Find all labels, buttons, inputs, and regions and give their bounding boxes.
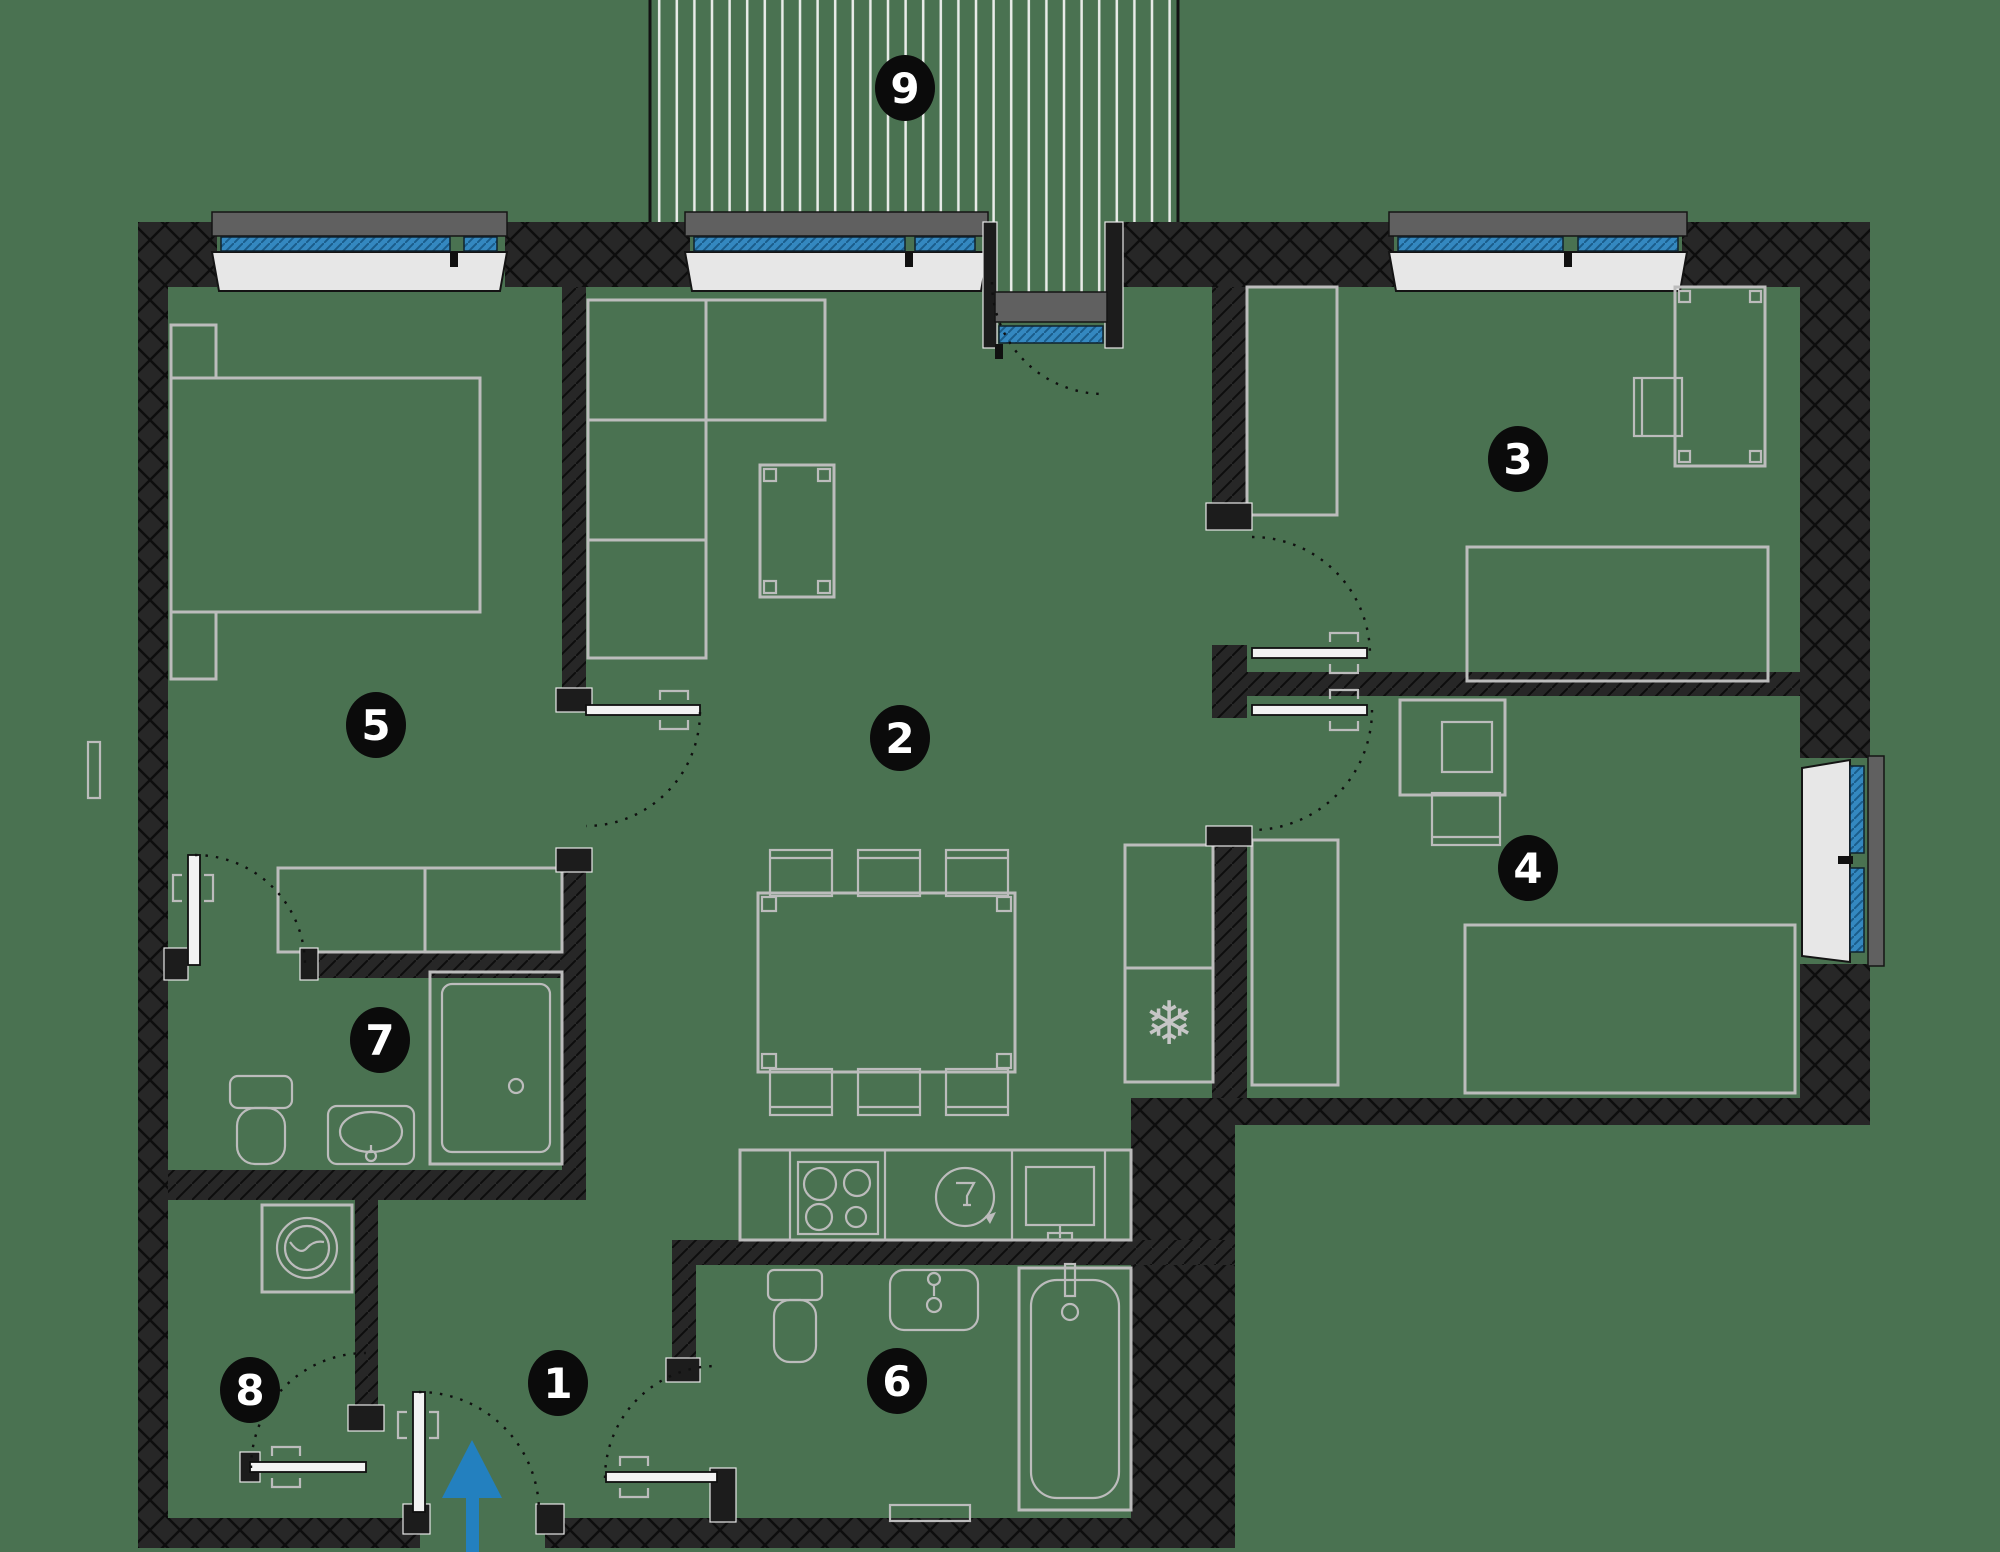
wall-bath6-north (672, 1240, 1235, 1265)
snowflake-icon: ❄ (1144, 989, 1194, 1059)
wall-step (1131, 1098, 1870, 1125)
svg-text:5: 5 (361, 701, 390, 750)
wall-room4-west (1212, 830, 1247, 1098)
svg-text:2: 2 (885, 714, 914, 763)
wall-bath6-west (672, 1240, 696, 1368)
svg-text:3: 3 (1503, 435, 1532, 484)
floor-plan-page: ❄ (0, 0, 2000, 1552)
window-room5 (212, 212, 507, 291)
wall-room3-west (1212, 287, 1247, 510)
room-badge-2: 2 (870, 705, 930, 771)
window-room4 (1802, 756, 1884, 966)
room-badge-4: 4 (1498, 835, 1558, 901)
wall-room7-south (168, 1170, 586, 1200)
floor-plan: ❄ (0, 0, 2000, 1552)
svg-text:4: 4 (1513, 844, 1542, 893)
room-badge-1: 1 (528, 1350, 588, 1416)
wall-room5-east-lower (562, 868, 586, 1200)
terrace-door-recess (995, 222, 1107, 292)
wall-pillar-room34 (1212, 645, 1247, 718)
wall-bottom-seg1 (138, 1518, 420, 1548)
svg-text:7: 7 (365, 1016, 394, 1065)
room-badge-7: 7 (350, 1007, 410, 1073)
wall-room5-east-upper (562, 287, 586, 694)
room-badge-8: 8 (220, 1357, 280, 1423)
svg-text:6: 6 (882, 1357, 911, 1406)
svg-text:1: 1 (543, 1359, 572, 1408)
window-living (685, 212, 988, 291)
wall-bath6-east (1131, 1098, 1235, 1548)
svg-text:9: 9 (890, 64, 919, 113)
room-badge-3: 3 (1488, 426, 1548, 492)
room-badge-6: 6 (867, 1348, 927, 1414)
room-badge-5: 5 (346, 692, 406, 758)
wall-top-seg2 (505, 222, 690, 287)
wall-top-seg4 (1107, 222, 1394, 287)
wall-room7-north (305, 952, 562, 978)
room-badge-9: 9 (875, 55, 935, 121)
wall-left (138, 222, 168, 1548)
wall-right-seg1 (1800, 222, 1870, 758)
window-room3 (1389, 212, 1687, 291)
svg-text:8: 8 (235, 1366, 264, 1415)
wall-room8-east (355, 1200, 378, 1418)
